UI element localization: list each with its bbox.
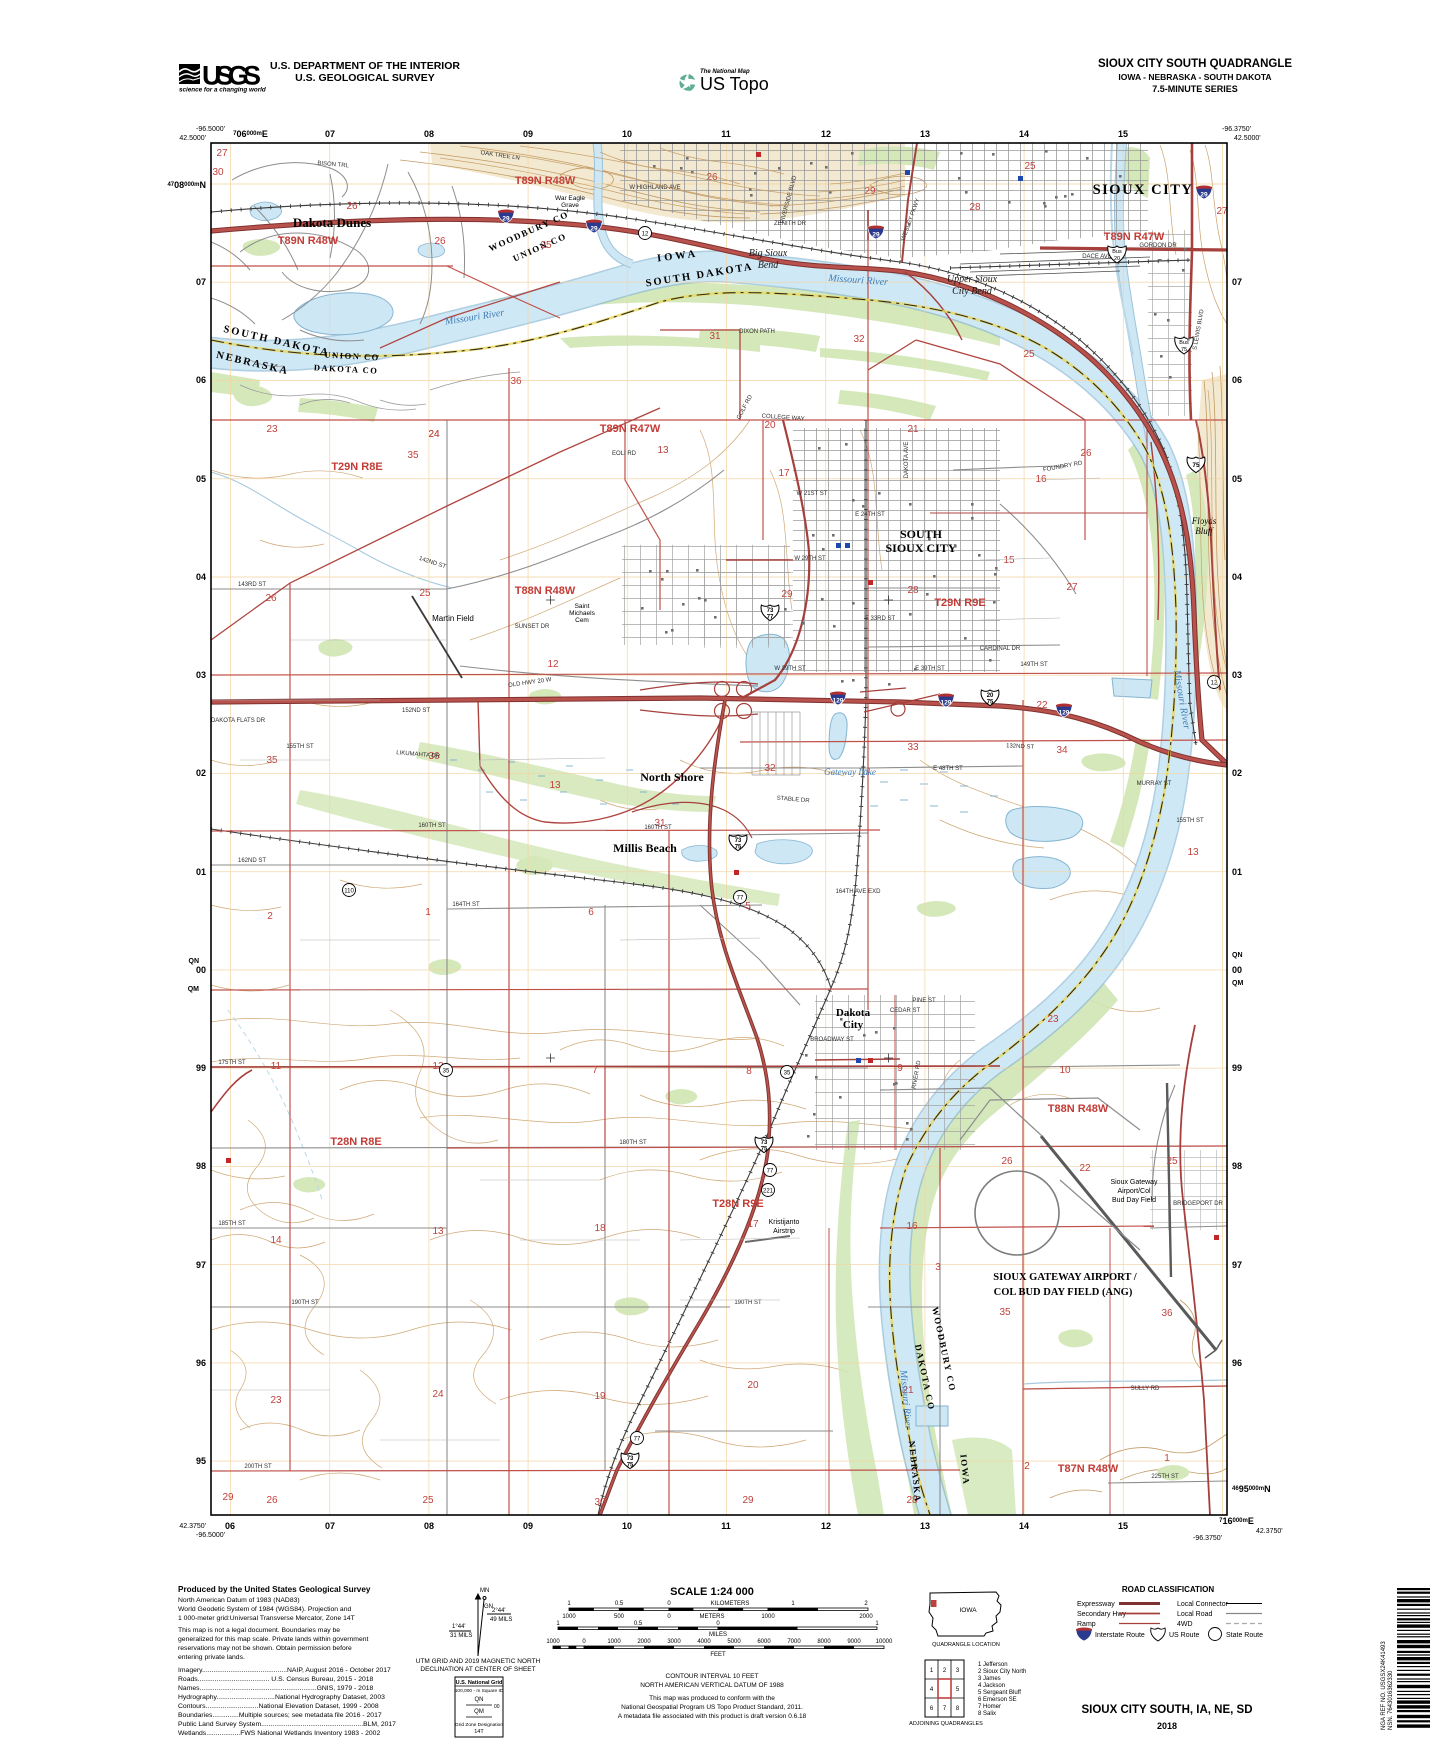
svg-text:Bend: Bend	[758, 260, 780, 271]
svg-text:Imagery.......................: Imagery.................................…	[178, 1667, 391, 1674]
svg-text:99: 99	[1232, 1063, 1242, 1073]
svg-text:ROAD CLASSIFICATION: ROAD CLASSIFICATION	[1122, 1585, 1215, 1594]
svg-text:SIOUX CITY SOUTH QUADRANGLE: SIOUX CITY SOUTH QUADRANGLE	[1098, 58, 1292, 70]
svg-text:73: 73	[627, 1456, 634, 1462]
svg-text:14: 14	[1019, 1521, 1029, 1531]
svg-text:MURRAY ST: MURRAY ST	[1137, 781, 1172, 787]
svg-text:A metadata file associated wit: A metadata file associated with this pro…	[618, 1713, 807, 1720]
svg-text:DAKOTA AVE: DAKOTA AVE	[904, 442, 910, 479]
svg-text:24: 24	[432, 1389, 444, 1400]
svg-text:15: 15	[1118, 1521, 1128, 1531]
svg-text:14T: 14T	[474, 1729, 484, 1735]
svg-text:04: 04	[196, 572, 206, 582]
svg-text:NGA REF NO. USGSX24K41493: NGA REF NO. USGSX24K41493	[1381, 1641, 1387, 1730]
svg-text:2: 2	[864, 1601, 868, 1607]
svg-text:155TH ST: 155TH ST	[286, 744, 314, 750]
svg-text:09: 09	[523, 129, 533, 139]
svg-text:W 21ST ST: W 21ST ST	[797, 491, 828, 497]
svg-text:Airport/Col: Airport/Col	[1117, 1188, 1151, 1195]
svg-text:Boundaries..............Multip: Boundaries..............Multiple sources…	[178, 1712, 382, 1719]
svg-text:Wetlands..................FWS: Wetlands..................FWS National W…	[178, 1730, 380, 1737]
svg-text:QN: QN	[475, 1697, 484, 1703]
svg-text:Sioux Gateway: Sioux Gateway	[1110, 1179, 1158, 1186]
svg-text:2°44': 2°44'	[492, 1608, 506, 1614]
svg-text:129: 129	[833, 698, 844, 705]
svg-text:World Geodetic System of 1984: World Geodetic System of 1984 (WGS84). P…	[178, 1606, 351, 1613]
svg-text:City: City	[843, 1019, 864, 1031]
svg-text:13: 13	[549, 780, 561, 791]
svg-text:1: 1	[791, 1601, 795, 1607]
svg-text:31: 31	[709, 331, 721, 342]
svg-text:T89N R47W: T89N R47W	[600, 423, 661, 435]
svg-text:DECLINATION AT CENTER OF SHEET: DECLINATION AT CENTER OF SHEET	[420, 1666, 535, 1673]
svg-text:North Shore: North Shore	[640, 770, 704, 784]
svg-text:31 MILS: 31 MILS	[450, 1633, 472, 1639]
svg-text:DAKOTA CO: DAKOTA CO	[314, 362, 379, 375]
svg-text:1000: 1000	[562, 1614, 576, 1620]
svg-text:98: 98	[1232, 1161, 1242, 1171]
svg-text:75: 75	[1192, 462, 1200, 469]
svg-text:QM: QM	[1232, 980, 1243, 987]
svg-text:17: 17	[778, 468, 790, 479]
svg-text:T89N R48W: T89N R48W	[278, 235, 339, 247]
svg-text:12: 12	[821, 1521, 831, 1531]
svg-text:T88N R48W: T88N R48W	[515, 585, 576, 597]
svg-text:2000: 2000	[859, 1614, 873, 1620]
svg-text:E 48TH ST: E 48TH ST	[933, 766, 963, 772]
svg-text:98: 98	[196, 1161, 206, 1171]
svg-text:1: 1	[930, 1668, 934, 1674]
svg-text:27: 27	[216, 148, 228, 159]
svg-text:Names.........................: Names...................................…	[178, 1685, 374, 1692]
svg-text:155TH ST: 155TH ST	[1176, 818, 1204, 824]
svg-text:75: 75	[761, 1146, 768, 1152]
svg-text:73: 73	[767, 608, 774, 614]
svg-text:SULLY RD: SULLY RD	[1131, 1386, 1160, 1392]
svg-text:State Route: State Route	[1226, 1632, 1263, 1639]
svg-text:3: 3	[935, 1262, 941, 1273]
svg-text:Secondary Hwy: Secondary Hwy	[1077, 1611, 1127, 1618]
svg-text:96: 96	[196, 1358, 206, 1368]
svg-text:73: 73	[735, 838, 742, 844]
svg-text:152ND ST: 152ND ST	[402, 708, 430, 714]
svg-text:Grid Zone Designation: Grid Zone Designation	[455, 1722, 503, 1728]
svg-text:110: 110	[344, 889, 354, 895]
svg-text:24: 24	[428, 429, 440, 440]
svg-text:OLD HWY 20 W: OLD HWY 20 W	[508, 677, 552, 689]
svg-text:DAKOTA FLATS DR: DAKOTA FLATS DR	[211, 718, 266, 724]
svg-text:36: 36	[510, 376, 522, 387]
svg-text:706000mE: 706000mE	[233, 129, 268, 139]
svg-text:01: 01	[1232, 867, 1242, 877]
svg-text:13: 13	[657, 445, 669, 456]
svg-text:22: 22	[1079, 1163, 1091, 1174]
svg-text:27: 27	[1066, 582, 1078, 593]
svg-text:Kristijanto: Kristijanto	[769, 1219, 800, 1226]
svg-text:28: 28	[969, 202, 981, 213]
svg-text:77: 77	[737, 896, 744, 902]
svg-text:25: 25	[422, 1495, 434, 1506]
svg-text:75: 75	[735, 844, 742, 850]
svg-text:Michaels: Michaels	[569, 610, 595, 617]
svg-text:9: 9	[897, 1063, 903, 1074]
svg-text:NORTH AMERICAN VERTICAL DATUM: NORTH AMERICAN VERTICAL DATUM OF 1988	[640, 1682, 784, 1689]
svg-text:02: 02	[196, 768, 206, 778]
svg-text:16: 16	[906, 1221, 918, 1232]
svg-text:73: 73	[761, 1140, 768, 1146]
svg-text:City Bend: City Bend	[952, 286, 993, 297]
svg-text:162ND ST: 162ND ST	[238, 858, 266, 864]
svg-text:23: 23	[1047, 1014, 1059, 1025]
svg-text:-96.5000': -96.5000'	[196, 1532, 225, 1539]
svg-text:26: 26	[346, 201, 358, 212]
svg-text:500: 500	[614, 1614, 625, 1620]
svg-text:26: 26	[266, 1495, 278, 1506]
svg-text:GOLF RD: GOLF RD	[736, 394, 754, 421]
svg-text:QUADRANGLE LOCATION: QUADRANGLE LOCATION	[932, 1642, 1000, 1648]
svg-text:35: 35	[999, 1307, 1011, 1318]
svg-text:143RD ST: 143RD ST	[238, 582, 266, 588]
svg-text:9000: 9000	[847, 1639, 861, 1645]
svg-text:SOUTH: SOUTH	[900, 527, 943, 541]
svg-text:7000: 7000	[787, 1639, 801, 1645]
svg-text:T88N R48W: T88N R48W	[1048, 1103, 1109, 1115]
svg-text:-96.3750': -96.3750'	[1193, 1535, 1222, 1542]
svg-text:129: 129	[1059, 710, 1070, 717]
svg-text:1: 1	[425, 907, 431, 918]
svg-text:180TH ST: 180TH ST	[619, 1140, 647, 1146]
svg-text:COL BUD DAY FIELD (ANG): COL BUD DAY FIELD (ANG)	[994, 1287, 1133, 1298]
svg-text:100,000 - m Square ID: 100,000 - m Square ID	[455, 1688, 504, 1694]
svg-text:1: 1	[875, 1621, 879, 1627]
svg-text:20: 20	[1114, 256, 1120, 262]
svg-text:25: 25	[1024, 161, 1036, 172]
svg-text:35: 35	[266, 755, 278, 766]
svg-text:Public Land Survey Syste: Public Land Survey System...............…	[178, 1721, 396, 1728]
svg-text:STABLE DR: STABLE DR	[776, 796, 810, 805]
svg-text:26: 26	[1080, 448, 1092, 459]
svg-text:10: 10	[622, 129, 632, 139]
svg-text:06: 06	[1232, 375, 1242, 385]
svg-text:0.5: 0.5	[634, 1621, 643, 1627]
svg-text:36: 36	[1161, 1308, 1173, 1319]
svg-text:T89N R47W: T89N R47W	[1104, 231, 1165, 243]
svg-text:1°44': 1°44'	[452, 1624, 466, 1630]
svg-text:11: 11	[271, 1061, 282, 1072]
svg-text:160TH ST: 160TH ST	[644, 825, 672, 831]
svg-text:T29N R8E: T29N R8E	[331, 461, 382, 473]
svg-text:12: 12	[642, 232, 649, 238]
svg-text:13: 13	[1187, 847, 1199, 858]
svg-text:3 James: 3 James	[978, 1676, 1001, 1682]
svg-text:164TH ST: 164TH ST	[452, 902, 480, 908]
svg-text:29: 29	[222, 1492, 234, 1503]
svg-text:T29N R9E: T29N R9E	[934, 597, 985, 609]
svg-text:This map is not a legal docume: This map is not a legal document. Bounda…	[178, 1627, 340, 1634]
svg-text:Interstate Route: Interstate Route	[1095, 1632, 1145, 1639]
svg-text:7: 7	[943, 1706, 947, 1712]
svg-text:Gateway Lake: Gateway Lake	[824, 767, 876, 777]
svg-text:13: 13	[432, 1226, 444, 1237]
svg-text:This map was produced to confo: This map was produced to conform with th…	[649, 1695, 775, 1702]
svg-text:3000: 3000	[667, 1639, 681, 1645]
svg-text:2: 2	[943, 1668, 947, 1674]
svg-text:29: 29	[781, 589, 793, 600]
svg-text:UTM GRID AND 2019 MAGNETIC NOR: UTM GRID AND 2019 MAGNETIC NORTH	[416, 1658, 541, 1665]
svg-text:FEET: FEET	[710, 1652, 726, 1658]
svg-text:T89N R48W: T89N R48W	[515, 175, 576, 187]
svg-text:IOWA: IOWA	[959, 1607, 977, 1614]
svg-text:4WD: 4WD	[1177, 1621, 1193, 1628]
svg-text:97: 97	[196, 1260, 206, 1270]
svg-text:BRIDGEPORT DR: BRIDGEPORT DR	[1173, 1201, 1223, 1207]
svg-text:35: 35	[443, 1069, 450, 1075]
svg-text:175TH ST: 175TH ST	[218, 1060, 246, 1066]
svg-text:8: 8	[746, 1066, 752, 1077]
svg-text:33: 33	[907, 742, 919, 753]
svg-text:BISON TRL: BISON TRL	[317, 161, 350, 170]
svg-text:7 Homer: 7 Homer	[978, 1704, 1001, 1710]
svg-text:WOODBURY CO: WOODBURY CO	[930, 1306, 958, 1393]
svg-text:22: 22	[1036, 700, 1048, 711]
svg-text:190TH ST: 190TH ST	[291, 1300, 319, 1306]
svg-text:U.S. GEOLOGICAL SURVEY: U.S. GEOLOGICAL SURVEY	[295, 72, 435, 84]
svg-text:99: 99	[196, 1063, 206, 1073]
svg-text:77: 77	[767, 1169, 774, 1175]
svg-text:KILOMETERS: KILOMETERS	[711, 1601, 750, 1607]
svg-text:10: 10	[622, 1521, 632, 1531]
svg-text:10: 10	[1059, 1065, 1071, 1076]
svg-text:03: 03	[1232, 670, 1242, 680]
svg-text:03: 03	[196, 670, 206, 680]
svg-text:12: 12	[547, 659, 559, 670]
svg-text:DACE AVE: DACE AVE	[1082, 254, 1112, 260]
svg-text:4000: 4000	[697, 1639, 711, 1645]
svg-text:07: 07	[1232, 277, 1242, 287]
svg-text:S LEWIS BLVD: S LEWIS BLVD	[1192, 308, 1205, 350]
svg-text:0: 0	[667, 1601, 671, 1607]
svg-text:Cem: Cem	[575, 617, 589, 624]
svg-text:42.5000': 42.5000'	[179, 135, 206, 142]
svg-text:14: 14	[270, 1235, 282, 1246]
svg-text:132ND ST: 132ND ST	[1006, 743, 1035, 750]
svg-text:96: 96	[1232, 1358, 1242, 1368]
svg-text:20: 20	[764, 420, 776, 431]
svg-text:EOLI RD: EOLI RD	[612, 451, 637, 457]
svg-text:4: 4	[930, 1687, 934, 1693]
svg-text:entering private lands.: entering private lands.	[178, 1654, 245, 1661]
svg-text:PINE ST: PINE ST	[912, 998, 936, 1004]
svg-text:14: 14	[1019, 129, 1029, 139]
svg-text:7: 7	[592, 1065, 598, 1076]
svg-text:ADJOINING QUADRANGLES: ADJOINING QUADRANGLES	[909, 1721, 983, 1727]
svg-text:E 39TH ST: E 39TH ST	[915, 666, 945, 672]
svg-text:IOWA - NEBRASKA - SOUTH DAKOTA: IOWA - NEBRASKA - SOUTH DAKOTA	[1118, 72, 1271, 82]
svg-text:science for a changing world: science for a changing world	[179, 87, 266, 94]
svg-text:QN: QN	[189, 958, 200, 965]
svg-text:77: 77	[634, 1437, 641, 1443]
svg-text:IOWA: IOWA	[958, 1454, 971, 1486]
svg-text:2018: 2018	[1157, 1721, 1177, 1731]
svg-text:Bluff: Bluff	[1195, 526, 1214, 536]
svg-text:North American Datum of 1983 (: North American Datum of 1983 (NAD83)	[178, 1597, 300, 1604]
svg-text:2 Sioux City North: 2 Sioux City North	[978, 1669, 1026, 1675]
svg-text:25: 25	[1023, 349, 1035, 360]
svg-text:Bud Day Field: Bud Day Field	[1112, 1197, 1156, 1204]
svg-text:32: 32	[764, 763, 776, 774]
svg-text:95: 95	[196, 1456, 206, 1466]
svg-text:20: 20	[987, 693, 994, 699]
svg-text:30: 30	[594, 1497, 606, 1508]
svg-text:US Topo: US Topo	[700, 74, 769, 94]
svg-text:142ND ST: 142ND ST	[418, 556, 447, 570]
svg-text:8: 8	[956, 1706, 960, 1712]
svg-text:10000: 10000	[876, 1639, 893, 1645]
svg-text:200TH ST: 200TH ST	[244, 1464, 272, 1470]
svg-text:11: 11	[721, 129, 731, 139]
svg-text:1 000-meter grid:Universal Tra: 1 000-meter grid:Universal Transverse Me…	[178, 1615, 355, 1622]
svg-text:19: 19	[594, 1391, 606, 1402]
svg-text:MILES: MILES	[709, 1632, 727, 1638]
svg-text:75: 75	[627, 1462, 634, 1468]
svg-text:18: 18	[594, 1223, 606, 1234]
svg-text:09: 09	[523, 1521, 533, 1531]
svg-text:Martin Field: Martin Field	[432, 614, 474, 623]
svg-text:6 Emerson SE: 6 Emerson SE	[978, 1697, 1017, 1703]
svg-text:129: 129	[941, 700, 952, 707]
svg-text:07: 07	[325, 1521, 335, 1531]
svg-text:E 24TH ST: E 24TH ST	[855, 512, 885, 518]
svg-text:GORDON DR: GORDON DR	[1139, 243, 1177, 249]
svg-text:34: 34	[1056, 745, 1068, 756]
svg-text:Contours......................: Contours............................Nati…	[178, 1703, 379, 1710]
svg-text:29: 29	[502, 216, 510, 223]
svg-text:T87N R48W: T87N R48W	[1058, 1463, 1119, 1475]
svg-text:Produced by the United States: Produced by the United States Geological…	[178, 1585, 371, 1594]
svg-text:4 Jackson: 4 Jackson	[978, 1683, 1005, 1689]
svg-text:97: 97	[1232, 1260, 1242, 1270]
svg-text:Bus: Bus	[1112, 249, 1122, 255]
svg-text:reservations may not be shown.: reservations may not be shown. Obtain pe…	[178, 1645, 352, 1652]
svg-text:Bus: Bus	[1179, 340, 1189, 346]
svg-text:42.3750': 42.3750'	[179, 1523, 206, 1530]
svg-text:23: 23	[270, 1395, 282, 1406]
svg-text:1: 1	[1164, 1453, 1170, 1464]
svg-text:SIOUX CITY: SIOUX CITY	[885, 541, 956, 555]
svg-text:8000: 8000	[817, 1639, 831, 1645]
svg-text:15: 15	[1003, 555, 1015, 566]
svg-text:6000: 6000	[757, 1639, 771, 1645]
svg-text:METERS: METERS	[699, 1614, 724, 1620]
svg-text:Local Road: Local Road	[1177, 1611, 1213, 1618]
svg-text:20: 20	[747, 1380, 759, 1391]
svg-text:SCALE 1:24 000: SCALE 1:24 000	[670, 1586, 754, 1598]
svg-text:07: 07	[325, 129, 335, 139]
svg-text:Dakota Dunes: Dakota Dunes	[293, 215, 371, 230]
svg-text:US Route: US Route	[1169, 1632, 1199, 1639]
svg-text:Expressway: Expressway	[1077, 1601, 1115, 1608]
svg-text:National Geospatial Program US: National Geospatial Program US Topo Prod…	[621, 1704, 803, 1711]
svg-text:1: 1	[556, 1621, 560, 1627]
svg-text:1 Jefferson: 1 Jefferson	[978, 1662, 1008, 1668]
svg-text:160TH ST: 160TH ST	[418, 823, 446, 829]
svg-text:29: 29	[590, 226, 598, 233]
svg-text:W 29TH ST: W 29TH ST	[794, 556, 826, 562]
svg-text:6: 6	[588, 907, 594, 918]
svg-text:5: 5	[956, 1687, 960, 1693]
svg-text:Local Connector: Local Connector	[1177, 1601, 1229, 1608]
svg-text:11: 11	[721, 1521, 731, 1531]
svg-text:00: 00	[196, 965, 206, 975]
svg-text:0: 0	[716, 1621, 720, 1627]
svg-text:CONTOUR INTERVAL 10 FEET: CONTOUR INTERVAL 10 FEET	[666, 1673, 759, 1680]
svg-text:QM: QM	[474, 1709, 484, 1715]
svg-text:77: 77	[767, 614, 774, 620]
svg-text:QN: QN	[1232, 952, 1243, 959]
svg-text:21: 21	[907, 424, 919, 435]
svg-text:CEDAR ST: CEDAR ST	[890, 1008, 921, 1014]
svg-text:75: 75	[987, 699, 994, 705]
svg-text:Airstrip: Airstrip	[773, 1228, 795, 1235]
svg-text:15: 15	[1118, 129, 1128, 139]
svg-text:T28N R9E: T28N R9E	[712, 1198, 763, 1210]
svg-text:12: 12	[821, 129, 831, 139]
svg-text:E 33RD ST: E 33RD ST	[865, 616, 896, 622]
svg-text:06: 06	[196, 375, 206, 385]
svg-text:7.5-MINUTE SERIES: 7.5-MINUTE SERIES	[1152, 84, 1238, 94]
svg-text:42.5000': 42.5000'	[1234, 135, 1261, 142]
svg-text:716000mE: 716000mE	[1219, 1516, 1254, 1526]
svg-text:23: 23	[266, 424, 278, 435]
svg-text:02: 02	[1232, 768, 1242, 778]
svg-text:SUNSET DR: SUNSET DR	[515, 624, 550, 630]
svg-text:1000: 1000	[607, 1639, 621, 1645]
svg-text:Millis Beach: Millis Beach	[613, 841, 677, 855]
svg-text:DIXON PATH: DIXON PATH	[739, 329, 775, 335]
svg-text:75: 75	[1181, 347, 1187, 353]
svg-text:8 Salix: 8 Salix	[978, 1711, 996, 1717]
svg-text:04: 04	[1232, 572, 1242, 582]
svg-text:2000: 2000	[637, 1639, 651, 1645]
svg-text:26: 26	[265, 593, 277, 604]
svg-text:05: 05	[196, 474, 206, 484]
svg-text:U.S. National Grid: U.S. National Grid	[456, 1680, 503, 1686]
svg-text:34: 34	[199, 326, 211, 337]
svg-text:Floyds: Floyds	[1191, 516, 1217, 526]
svg-text:225TH ST: 225TH ST	[1151, 1474, 1179, 1480]
svg-text:SIOUX CITY: SIOUX CITY	[1093, 182, 1194, 198]
svg-text:1000: 1000	[546, 1639, 560, 1645]
svg-text:SIOUX CITY SOUTH, IA, NE, SD: SIOUX CITY SOUTH, IA, NE, SD	[1081, 1704, 1252, 1716]
svg-text:32: 32	[853, 334, 865, 345]
svg-text:6: 6	[930, 1706, 934, 1712]
svg-text:-96.3750': -96.3750'	[1222, 126, 1251, 133]
svg-text:3: 3	[956, 1668, 960, 1674]
svg-text:Saint: Saint	[575, 603, 590, 610]
svg-text:164TH AVE EXD: 164TH AVE EXD	[836, 889, 882, 895]
svg-text:Hydrography...................: Hydrography.............................…	[178, 1694, 385, 1701]
svg-text:Grave: Grave	[561, 202, 579, 209]
svg-text:07: 07	[196, 277, 206, 287]
svg-text:Upper Sioux: Upper Sioux	[947, 274, 998, 285]
svg-text:CARDINAL DR: CARDINAL DR	[980, 646, 1021, 652]
svg-text:01: 01	[196, 867, 206, 877]
svg-text:-96.5000': -96.5000'	[196, 126, 225, 133]
svg-text:49 MILS: 49 MILS	[490, 1617, 512, 1623]
svg-text:1: 1	[567, 1601, 571, 1607]
svg-text:Ramp: Ramp	[1077, 1621, 1096, 1628]
svg-text:29: 29	[872, 232, 880, 239]
